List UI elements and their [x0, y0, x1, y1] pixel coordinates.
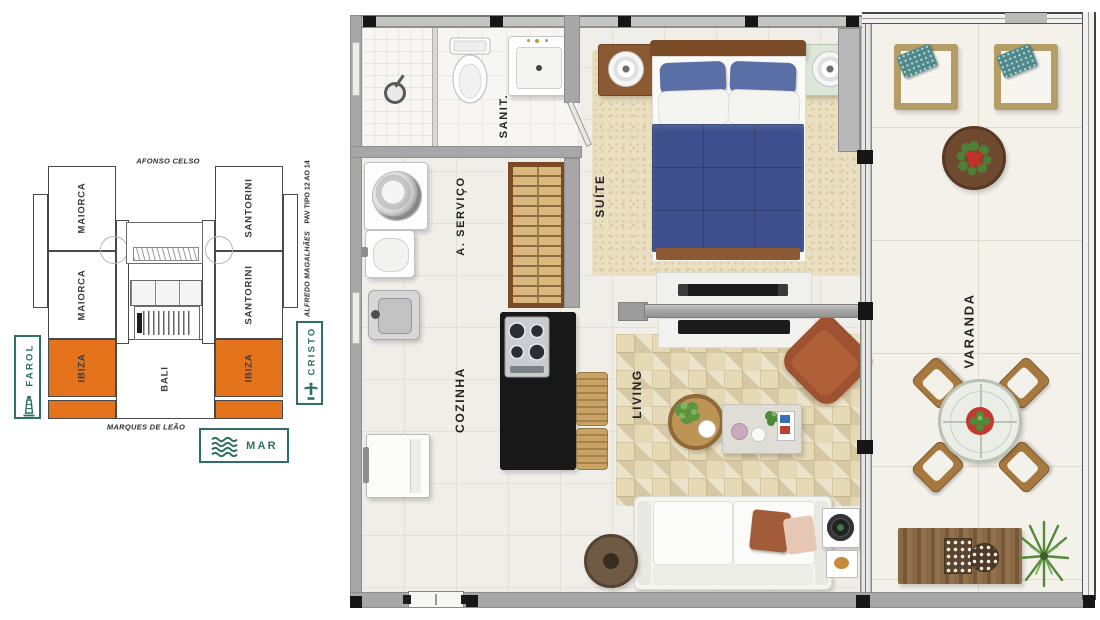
room-label-varanda: VARANDA — [962, 293, 977, 368]
washing-machine — [364, 162, 428, 230]
entry-door-split — [435, 594, 437, 605]
sofa — [634, 496, 832, 590]
column-bottom-4 — [1083, 595, 1095, 608]
unit-bali-label: BALI — [160, 366, 171, 391]
street-label-top: AFONSO CELSO — [136, 157, 200, 166]
bathroom-sink-faucet — [535, 39, 539, 43]
coffee-table-book-art2 — [780, 426, 790, 434]
badge-cristo: CRISTO — [296, 321, 323, 405]
unit-ibiza-right-label: IBIZA — [244, 354, 255, 383]
column-bottom-3 — [856, 595, 870, 608]
side-tray — [826, 550, 858, 578]
bar-stool-1 — [576, 372, 608, 426]
sofa-arm-left — [637, 501, 651, 585]
wall-top — [350, 15, 862, 28]
fridge — [366, 434, 430, 498]
washer-drum — [372, 171, 422, 221]
suite-sliding-panel — [838, 28, 860, 152]
closet — [508, 162, 566, 308]
core-elevators — [130, 280, 202, 306]
column-top-5 — [846, 16, 859, 27]
bathroom-sink-tap-right — [545, 39, 548, 42]
bathroom-sink-tap-left — [527, 39, 530, 42]
fridge-handle — [363, 447, 369, 483]
toilet — [446, 36, 494, 113]
floor-speaker — [584, 534, 638, 588]
record-player-table — [822, 508, 860, 548]
lighthouse-icon — [21, 395, 37, 422]
lamp-left — [608, 51, 644, 87]
unit-santorini-bottom-label: SANTORINI — [244, 265, 255, 324]
wall-suite-west — [564, 158, 580, 308]
bathroom-sink-drain — [536, 65, 542, 71]
coffee-table-dish — [731, 423, 748, 440]
floor-speaker-center — [603, 553, 619, 569]
core-door-swing-left — [100, 236, 128, 264]
badge-cristo-label: CRISTO — [307, 327, 318, 376]
bed-foot-bench — [656, 248, 800, 260]
waves-icon — [210, 435, 238, 457]
varanda-rail-right — [1082, 12, 1096, 600]
bathroom-sink — [508, 36, 570, 96]
palm-plant — [1016, 518, 1072, 597]
entry-door — [408, 591, 464, 608]
coffee-table-book — [777, 411, 795, 441]
dining-table-plant — [967, 408, 993, 439]
keyplan-strip-right — [215, 400, 283, 419]
column-bottom-2 — [466, 595, 478, 607]
laundry-tank — [365, 230, 415, 278]
shower-partition — [432, 27, 438, 147]
lounge-chair-right-pillow — [996, 43, 1038, 79]
sofa-pillow-blush — [783, 515, 818, 555]
unit-maiorca-top-label: MAIORCA — [77, 183, 88, 234]
core-ramp — [133, 247, 199, 261]
laundry-tank-basin — [373, 238, 409, 272]
dining-chair-se-cushion — [1006, 450, 1040, 484]
bed-duvet — [652, 124, 804, 252]
column-top-3 — [618, 16, 631, 27]
glass-post-1 — [857, 150, 873, 164]
floorplan-sheet: AFONSO CELSO MARQUES DE LEÃO ALFREDO MAG… — [0, 0, 1100, 620]
street-label-right: ALFREDO MAGALHÃES — [305, 231, 312, 317]
varanda-floor-joint — [978, 14, 979, 600]
coffee-table-book-art1 — [780, 415, 790, 423]
kitchen-sink-faucet — [371, 310, 380, 319]
cristo-icon — [303, 382, 319, 405]
core-corridor — [126, 222, 203, 264]
column-top-1 — [363, 16, 376, 27]
sideboard-flower-box — [944, 538, 972, 574]
sofa-backrest — [653, 565, 813, 585]
room-label-cozinha: COZINHA — [453, 367, 467, 433]
core-stairs — [134, 306, 200, 340]
tv-suite — [678, 284, 788, 296]
unit-maiorca-bottom-label: MAIORCA — [77, 270, 88, 321]
core-stairs-treads — [143, 311, 193, 335]
floor-note: PAV TIPO 12 AO 14 — [305, 160, 312, 223]
bar-stool-2 — [576, 428, 608, 470]
tv-living — [678, 320, 790, 334]
pouf-tray — [698, 420, 716, 438]
column-top-2 — [490, 16, 503, 27]
cooktop — [504, 316, 550, 383]
side-tray-item — [834, 557, 849, 569]
dining-table — [938, 379, 1022, 463]
sideboard-flower-bowl — [970, 543, 999, 572]
unit-ibiza-left-label: IBIZA — [77, 354, 88, 383]
room-label-servico: A. SERVIÇO — [455, 176, 467, 255]
vinyl-record-label — [837, 524, 844, 531]
room-label-sanit: SANIT. — [498, 94, 510, 138]
lounge-chair-right — [994, 44, 1058, 110]
divider-end-post — [858, 302, 873, 320]
varanda-sideboard — [898, 528, 1022, 584]
street-label-bottom: MARQUES DE LEÃO — [107, 423, 185, 432]
keyplan-strip-left — [48, 400, 116, 419]
dining-chair-sw-cushion — [921, 449, 955, 483]
keyplan-wing-right — [283, 194, 298, 308]
core-stairs-post — [137, 313, 142, 333]
core-door-swing-right — [205, 236, 233, 264]
unit-santorini-top-label: SANTORINI — [244, 178, 255, 237]
coffee-table — [722, 404, 802, 454]
entry-door-hinge-left — [403, 595, 411, 604]
varanda-rail-pier — [1005, 13, 1047, 23]
keyplan-wing-left — [33, 194, 48, 308]
lounge-chair-left-pillow — [896, 43, 938, 79]
wall-bath-bottom — [350, 146, 582, 158]
window-service — [352, 292, 360, 344]
kitchen-sink-bowl — [378, 298, 412, 334]
badge-mar-label: MAR — [246, 440, 278, 452]
bed-pillow-white-left — [657, 89, 730, 127]
room-label-suite: SUÍTE — [593, 174, 607, 217]
window-shower — [352, 42, 360, 96]
kitchen-sink — [368, 290, 420, 340]
fridge-door-edge — [410, 439, 421, 493]
wall-bath-right — [564, 15, 580, 103]
sofa-seat-left — [653, 501, 733, 565]
glass-post-2 — [857, 440, 873, 454]
column-bottom-1 — [350, 596, 362, 608]
badge-farol: FAROL — [14, 335, 41, 419]
column-top-4 — [745, 16, 758, 27]
lounge-chair-left — [894, 44, 958, 110]
suite-living-divider — [644, 304, 866, 318]
room-label-living: LIVING — [630, 369, 644, 419]
bed-pillow-white-right — [727, 89, 800, 127]
closet-rod — [537, 167, 539, 303]
varanda-table-plant — [954, 138, 994, 183]
varanda-rail-top — [862, 12, 1094, 24]
badge-farol-label: FAROL — [25, 343, 36, 386]
badge-mar: MAR — [199, 428, 289, 463]
